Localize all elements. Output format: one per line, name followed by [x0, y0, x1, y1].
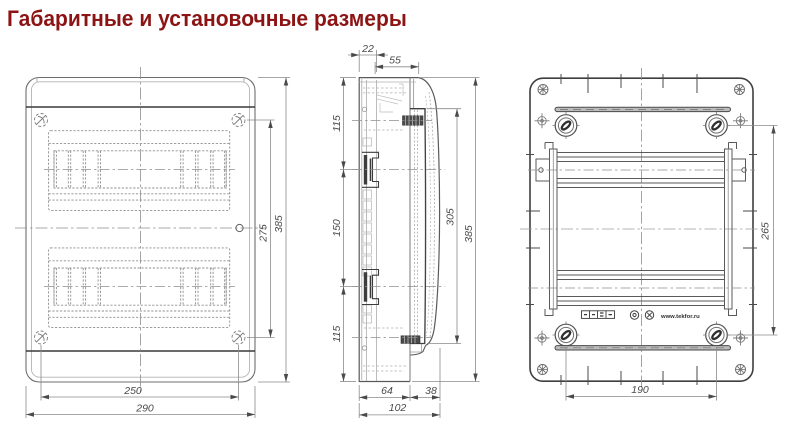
svg-text:150: 150: [331, 219, 343, 237]
svg-text:22: 22: [361, 43, 374, 55]
svg-text:64: 64: [381, 385, 393, 397]
svg-text:38: 38: [425, 385, 437, 397]
svg-text:115: 115: [331, 115, 343, 132]
svg-text:385: 385: [463, 225, 475, 243]
svg-text:250: 250: [123, 385, 142, 397]
svg-text:305: 305: [445, 208, 457, 226]
svg-text:www.tekfor.ru: www.tekfor.ru: [660, 314, 700, 320]
svg-text:275: 275: [258, 224, 270, 243]
svg-text:290: 290: [135, 403, 154, 415]
svg-text:55: 55: [389, 55, 401, 67]
svg-text:115: 115: [331, 325, 343, 342]
svg-text:102: 102: [389, 402, 407, 414]
svg-text:190: 190: [631, 384, 649, 396]
svg-text:385: 385: [273, 215, 285, 233]
svg-text:265: 265: [760, 222, 772, 241]
